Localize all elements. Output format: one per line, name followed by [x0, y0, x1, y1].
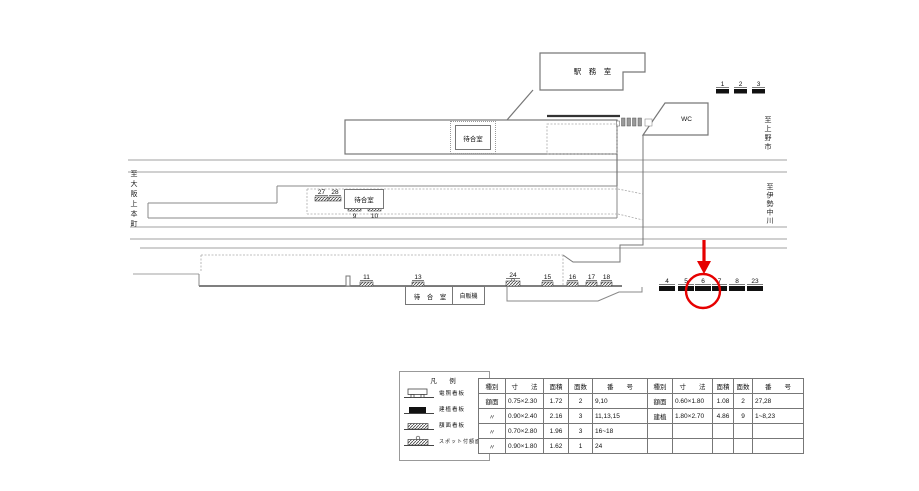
sign-2: 2: [734, 81, 747, 94]
spec-table-cell: 1.62: [544, 439, 569, 454]
spec-table-cell: [648, 439, 673, 454]
highlight-arrow-icon: [697, 240, 711, 274]
svg-text:23: 23: [751, 278, 759, 285]
legend-item-lighted: 電照看板: [400, 385, 489, 401]
spec-table-cell: [753, 424, 804, 439]
svg-text:3: 3: [757, 81, 761, 88]
legend-item-label: スポット付額面: [439, 438, 481, 445]
svg-text:24: 24: [509, 272, 517, 279]
spec-table-cell: 建植: [648, 409, 673, 424]
legend-item-label: 電照看板: [439, 389, 465, 397]
col-dimensions: 寸 法: [673, 379, 713, 394]
station-signage-plan: 1 2 3 27 28: [0, 0, 919, 491]
spec-table-row: 〃0.90×1.801.62124: [479, 439, 804, 454]
spec-table-cell: 9,10: [593, 394, 648, 409]
legend-item-label: 額面看板: [439, 421, 465, 429]
spec-table-cell: [713, 424, 734, 439]
waiting-room-main: 待合室: [455, 125, 491, 150]
svg-text:18: 18: [603, 274, 611, 281]
spec-table-header-row: 種別 寸 法 面積 面数 番 号 種別 寸 法 面積 面数 番 号: [479, 379, 804, 394]
sign-23: 23: [747, 278, 763, 291]
legend-item-spot-face: スポット付額面: [400, 433, 489, 449]
spec-table-cell: 3: [569, 409, 593, 424]
spec-table-cell: 1: [569, 439, 593, 454]
spec-table-cell: 0.75×2.30: [506, 394, 544, 409]
col-dimensions: 寸 法: [506, 379, 544, 394]
direction-to-osaka-uehommachi: 至大阪上本町: [128, 170, 138, 230]
track-lines: [128, 160, 787, 274]
spec-table-cell: 1.08: [713, 394, 734, 409]
legend-item-erected: 建植看板: [400, 401, 489, 417]
waiting-room-platform: 待合室: [344, 189, 384, 209]
spec-table-cell: 16~18: [593, 424, 648, 439]
spec-table-cell: 24: [593, 439, 648, 454]
sign-8: 8: [729, 278, 745, 291]
col-numbers: 番 号: [753, 379, 804, 394]
sign-27: 27: [315, 189, 328, 201]
legend-item-face: 額面看板: [400, 417, 489, 433]
waiting-room-bottom: 待 合 室: [405, 286, 455, 305]
sign-16: 16: [567, 274, 578, 286]
svg-text:28: 28: [331, 189, 339, 196]
svg-text:4: 4: [665, 278, 669, 285]
svg-text:9: 9: [353, 213, 357, 220]
sign-group-top: 1 2 3: [716, 81, 765, 94]
spec-table-row: 額面0.75×2.301.7229,10額面0.60×1.801.08227,2…: [479, 394, 804, 409]
wc-label: WC: [665, 103, 708, 135]
spec-table-cell: [734, 424, 753, 439]
spec-table-cell: [673, 439, 713, 454]
ticket-gates: [617, 118, 653, 126]
spec-table-cell: [734, 439, 753, 454]
legend: 凡 例 電照看板 建植看板 額面看板: [399, 371, 490, 461]
legend-item-label: 建植看板: [439, 405, 465, 413]
spec-table-cell: [673, 424, 713, 439]
spec-table-cell: 2.16: [544, 409, 569, 424]
sign-24: 24: [506, 272, 520, 286]
spec-table-cell: 3: [569, 424, 593, 439]
spec-table-cell: [713, 439, 734, 454]
spec-table-cell: 額面: [648, 394, 673, 409]
svg-text:16: 16: [569, 274, 577, 281]
col-area: 面積: [713, 379, 734, 394]
sign-18: 18: [601, 274, 612, 286]
sign-17: 17: [586, 274, 597, 286]
spec-table-cell: 2: [734, 394, 753, 409]
spec-table-cell: 1.80×2.70: [673, 409, 713, 424]
spec-table-cell: 4.86: [713, 409, 734, 424]
sign-13: 13: [412, 274, 424, 286]
legend-spot-face-sign-icon: [404, 435, 434, 447]
sign-4: 4: [659, 278, 675, 291]
svg-text:8: 8: [735, 278, 739, 285]
col-numbers: 番 号: [593, 379, 648, 394]
sign-1: 1: [716, 81, 729, 94]
svg-text:11: 11: [363, 274, 370, 281]
sign-28: 28: [329, 189, 341, 201]
spec-table-cell: 27,28: [753, 394, 804, 409]
spec-table-cell: 2: [569, 394, 593, 409]
vending-machine-room: 自販機: [452, 286, 485, 305]
direction-to-uenoshi: 至上野市: [762, 116, 772, 152]
legend-title: 凡 例: [400, 375, 489, 385]
svg-text:27: 27: [318, 189, 326, 196]
spec-table-cell: 0.60×1.80: [673, 394, 713, 409]
legend-erected-sign-icon: [404, 403, 434, 415]
svg-text:10: 10: [371, 213, 379, 220]
svg-text:2: 2: [739, 81, 743, 88]
middle-platform-dotted: [201, 124, 643, 285]
spec-table-cell: 0.90×1.80: [506, 439, 544, 454]
col-type: 種別: [648, 379, 673, 394]
platform-pillar: [346, 276, 350, 286]
spec-table-cell: 額面: [479, 394, 506, 409]
svg-text:13: 13: [414, 274, 422, 281]
spec-table-cell: 9: [734, 409, 753, 424]
spec-table-cell: [648, 424, 673, 439]
spec-table-cell: 0.70×2.80: [506, 424, 544, 439]
spec-table-cell: 0.90×2.40: [506, 409, 544, 424]
col-area: 面積: [544, 379, 569, 394]
station-office-label: 駅 務 室: [540, 53, 645, 90]
spec-table-cell: 〃: [479, 409, 506, 424]
sign-15: 15: [542, 274, 553, 286]
sign-group-bottom-platform: 11 13 24 15 16: [360, 272, 612, 286]
spec-table-cell: 1.72: [544, 394, 569, 409]
direction-to-ise-nakagawa: 至伊勢中川: [764, 183, 774, 226]
sign-11: 11: [360, 274, 373, 286]
legend-lighted-sign-icon: [404, 387, 434, 399]
svg-text:6: 6: [701, 278, 705, 285]
spec-table-cell: 11,13,15: [593, 409, 648, 424]
connector-diagonal: [507, 90, 533, 120]
sign-group-bottom-right: 4 5 6 7 8: [659, 278, 763, 291]
svg-text:1: 1: [721, 81, 725, 88]
svg-text:15: 15: [544, 274, 552, 281]
spec-table-cell: 1.96: [544, 424, 569, 439]
col-faces: 面数: [734, 379, 753, 394]
spec-table-row: 〃0.70×2.801.96316~18: [479, 424, 804, 439]
spec-table-cell: 〃: [479, 424, 506, 439]
spec-table-cell: [753, 439, 804, 454]
legend-face-sign-icon: [404, 419, 434, 431]
col-faces: 面数: [569, 379, 593, 394]
col-type: 種別: [479, 379, 506, 394]
spec-table-cell: 〃: [479, 439, 506, 454]
sign-spec-table: 種別 寸 法 面積 面数 番 号 種別 寸 法 面積 面数 番 号 額面0.75…: [478, 378, 804, 454]
spec-table-row: 〃0.90×2.402.16311,13,15建植1.80×2.704.8691…: [479, 409, 804, 424]
svg-text:17: 17: [588, 274, 596, 281]
sign-6: 6: [695, 278, 711, 291]
sign-3: 3: [752, 81, 765, 94]
spec-table-cell: 1~8,23: [753, 409, 804, 424]
